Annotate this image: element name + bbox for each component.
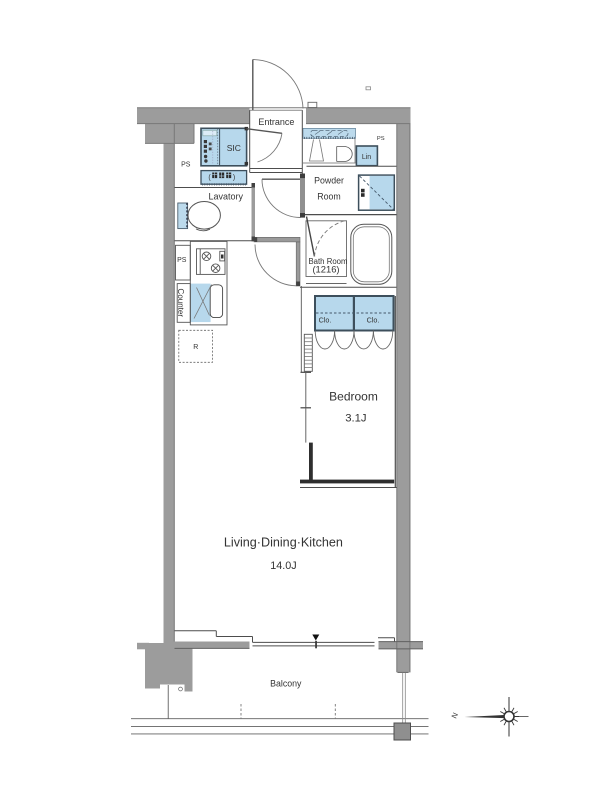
svg-text:14.0J: 14.0J xyxy=(270,560,296,572)
svg-text:R: R xyxy=(193,344,198,351)
svg-text:(1216): (1216) xyxy=(312,263,339,274)
svg-text:): ) xyxy=(233,175,235,182)
svg-text:Clo.: Clo. xyxy=(319,316,332,325)
svg-text:Counter: Counter xyxy=(176,289,185,318)
svg-text:Lavatory: Lavatory xyxy=(209,192,244,202)
svg-text:Room: Room xyxy=(317,192,340,202)
svg-text:PS: PS xyxy=(177,257,187,264)
svg-text:3.1J: 3.1J xyxy=(345,413,366,425)
svg-text:Living·Dining·Kitchen: Living·Dining·Kitchen xyxy=(224,535,343,549)
svg-text:Bedroom: Bedroom xyxy=(329,389,378,403)
svg-text:Entrance: Entrance xyxy=(258,117,294,127)
svg-text:Powder: Powder xyxy=(314,176,344,186)
svg-text:PS: PS xyxy=(181,161,191,168)
svg-text:Clo.: Clo. xyxy=(367,316,380,325)
svg-text:SIC: SIC xyxy=(227,143,241,153)
svg-text:Lin: Lin xyxy=(362,154,371,161)
svg-text:Balcony: Balcony xyxy=(270,678,302,688)
svg-text:PS: PS xyxy=(377,136,385,142)
